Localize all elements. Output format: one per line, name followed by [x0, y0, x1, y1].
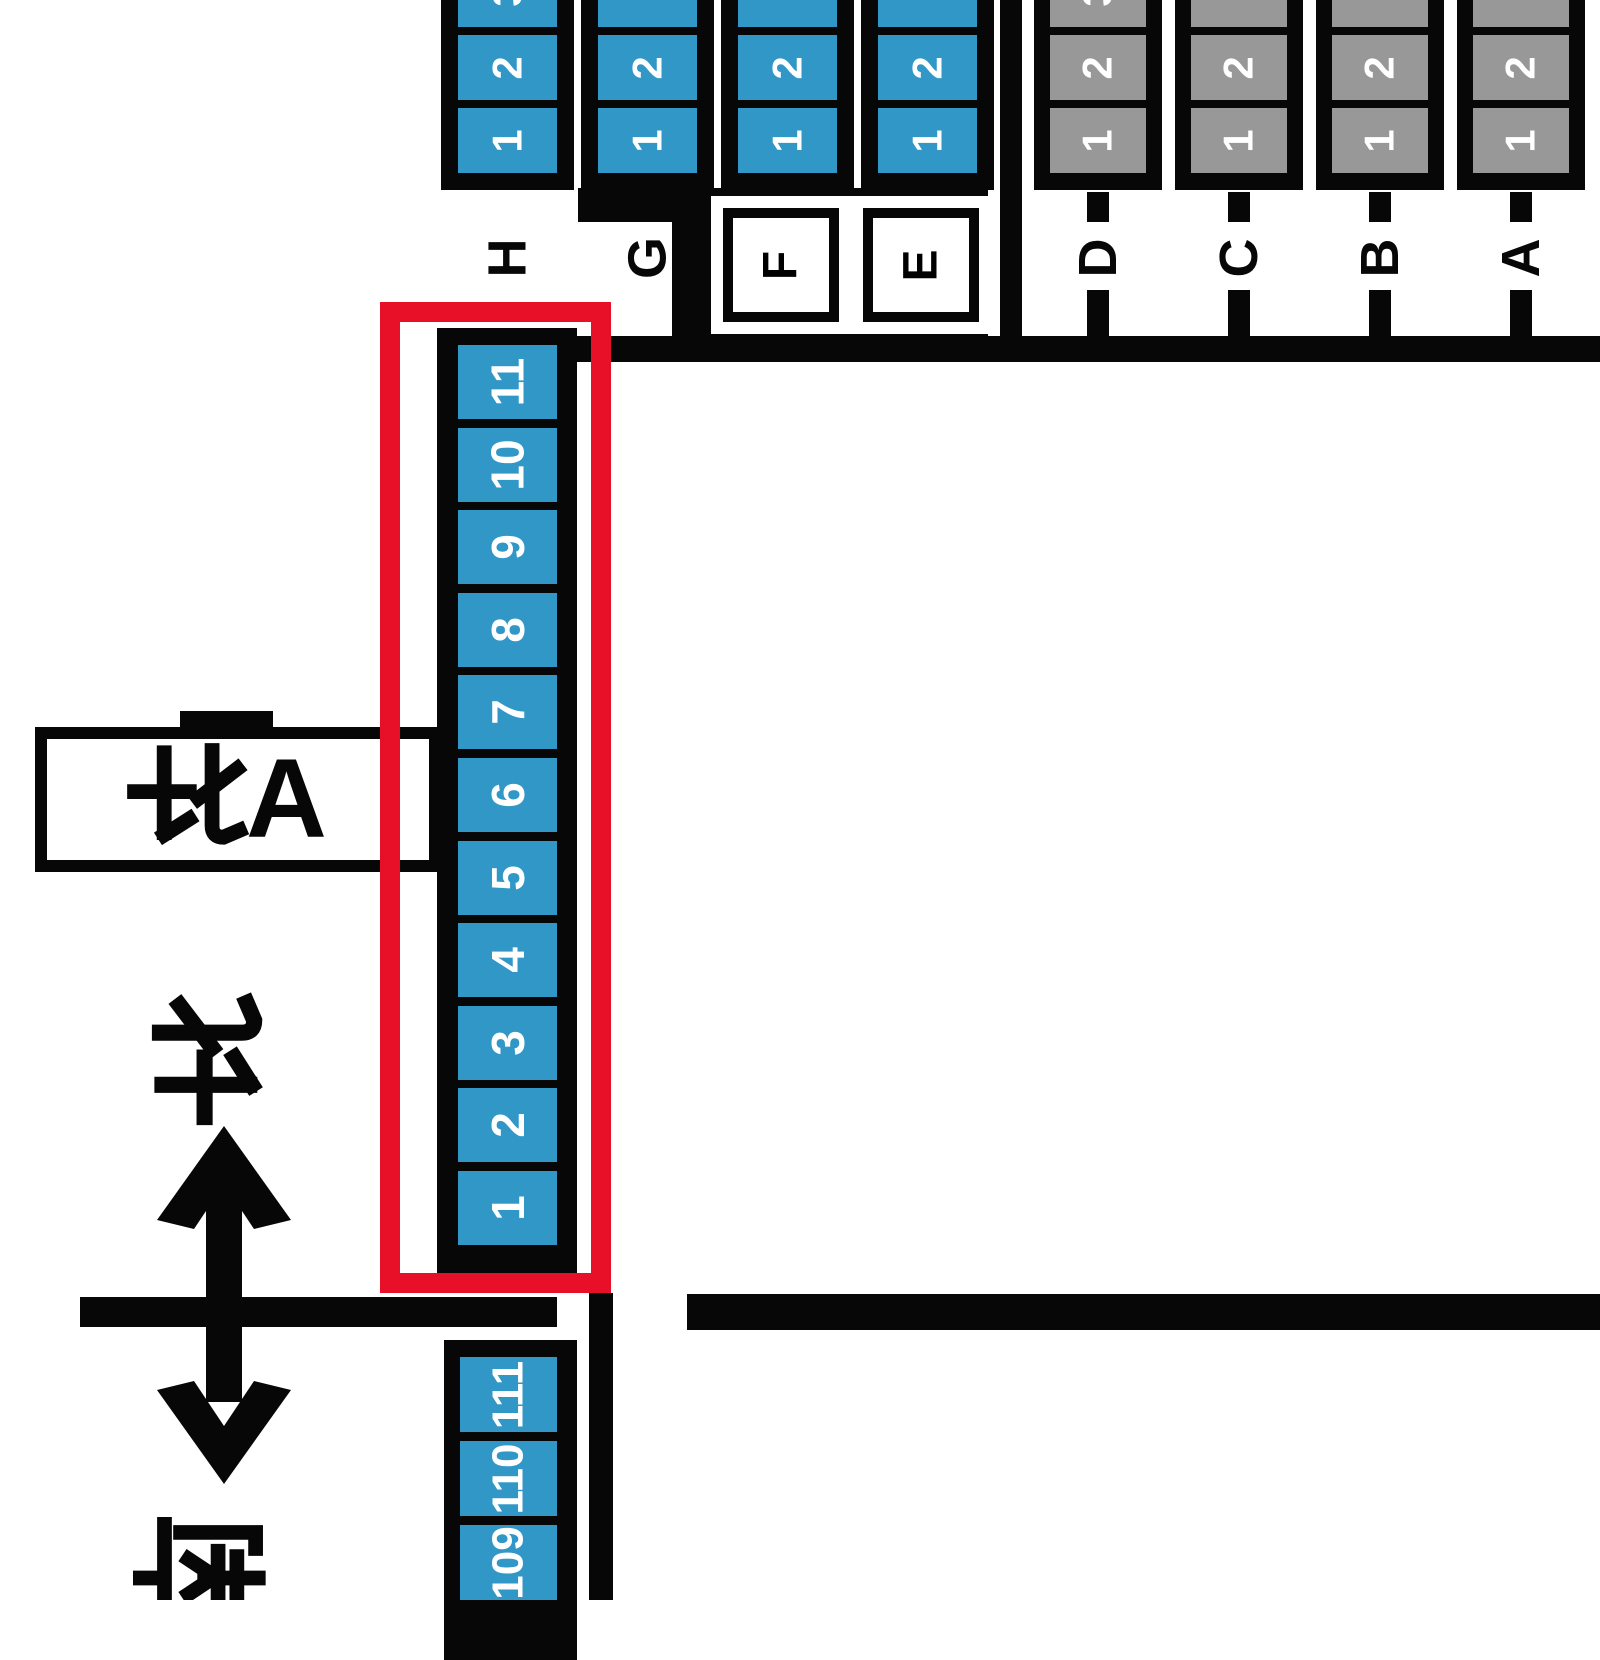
- booth-cell: [738, 0, 837, 27]
- booth-cell: 2: [1191, 35, 1287, 100]
- booth-cell: 1: [1191, 108, 1287, 173]
- booth-number: 1: [903, 129, 951, 152]
- venue-map: { "map_title": "event booth map (cropped…: [0, 0, 1600, 1600]
- booth-cell: [598, 0, 697, 27]
- booth-cell: 1: [1473, 108, 1569, 173]
- booth-cell: 2: [1332, 35, 1428, 100]
- block-label-G: G: [620, 192, 676, 325]
- booth-number: 3: [483, 0, 531, 6]
- booth-number: 1: [1074, 129, 1122, 152]
- booth-cell: [1332, 0, 1428, 27]
- booth-number: 2: [623, 56, 671, 79]
- booth-cell: 3: [1050, 0, 1146, 27]
- booth-number: 109: [483, 1526, 533, 1599]
- booth-number: 111: [484, 1360, 534, 1429]
- column-F-box: 12: [721, 0, 854, 190]
- block-label-E: E: [863, 208, 979, 322]
- block-label-B: B: [1352, 194, 1408, 322]
- booth-cell: [878, 0, 977, 27]
- booth-number: 2: [1356, 56, 1404, 79]
- booth-cell: 2: [878, 35, 977, 100]
- booth-cell: 109: [460, 1525, 557, 1600]
- booth-cell: 1: [1332, 108, 1428, 173]
- booth-cell: 110: [460, 1441, 557, 1516]
- column-E-box: 12: [861, 0, 994, 190]
- booth-number: 2: [763, 56, 811, 79]
- booth-cell: 1: [598, 108, 697, 173]
- kanji-south-compass: [140, 1524, 263, 1600]
- booth-number: 1: [483, 129, 531, 152]
- booth-cell: 2: [458, 35, 557, 100]
- booth-cell: 2: [598, 35, 697, 100]
- booth-number: 1: [623, 129, 671, 152]
- wall-tab: [180, 711, 273, 727]
- booth-number: 1: [1497, 129, 1545, 152]
- column-D-box: 123: [1034, 0, 1162, 190]
- block-label-A: A: [1493, 194, 1549, 322]
- column-C-box: 12: [1175, 0, 1303, 190]
- booth-number: 2: [1074, 56, 1122, 79]
- booth-cell: [1191, 0, 1287, 27]
- column-B-box: 12: [1316, 0, 1444, 190]
- road-bar-right: [687, 1294, 1600, 1330]
- road-bar-left: [80, 1297, 557, 1327]
- gray-section-left-border: [1000, 0, 1022, 360]
- block-label-D: D: [1070, 194, 1126, 322]
- booth-cell: [1473, 0, 1569, 27]
- booth-number: 1: [763, 129, 811, 152]
- booth-number: 2: [1497, 56, 1545, 79]
- block-label-F-box: F: [711, 196, 851, 334]
- booth-number: 110: [483, 1443, 533, 1514]
- booth-number: 1: [1215, 129, 1263, 152]
- block-label-E-box: E: [851, 196, 991, 334]
- block-label-F: F: [723, 208, 839, 322]
- booth-number: 1: [1356, 129, 1404, 152]
- booth-cell: 2: [1473, 35, 1569, 100]
- booth-number: 3: [1074, 0, 1122, 6]
- booth-cell: 2: [1050, 35, 1146, 100]
- column-A-box: 12: [1457, 0, 1585, 190]
- wall-bar-top: [575, 336, 1600, 362]
- wall-vertical: [589, 1293, 613, 1600]
- block-label-C: C: [1211, 194, 1267, 322]
- booth-number: 2: [1215, 56, 1263, 79]
- highlight-box: [380, 302, 611, 1293]
- booth-cell: 1: [1050, 108, 1146, 173]
- column-H-box: 123: [441, 0, 574, 190]
- booth-number: 2: [483, 56, 531, 79]
- booth-cell: 1: [458, 108, 557, 173]
- area-label-letter: A: [246, 739, 327, 859]
- bottom-column-box: 111110109: [444, 1340, 577, 1660]
- kanji-north-compass: [160, 1003, 254, 1117]
- booth-cell: 111: [460, 1357, 557, 1432]
- booth-cell: 3: [458, 0, 557, 27]
- column-G-box: 12: [581, 0, 714, 190]
- booth-cell: 1: [738, 108, 837, 173]
- booth-cell: 2: [738, 35, 837, 100]
- booth-cell: 1: [878, 108, 977, 173]
- booth-number: 2: [903, 56, 951, 79]
